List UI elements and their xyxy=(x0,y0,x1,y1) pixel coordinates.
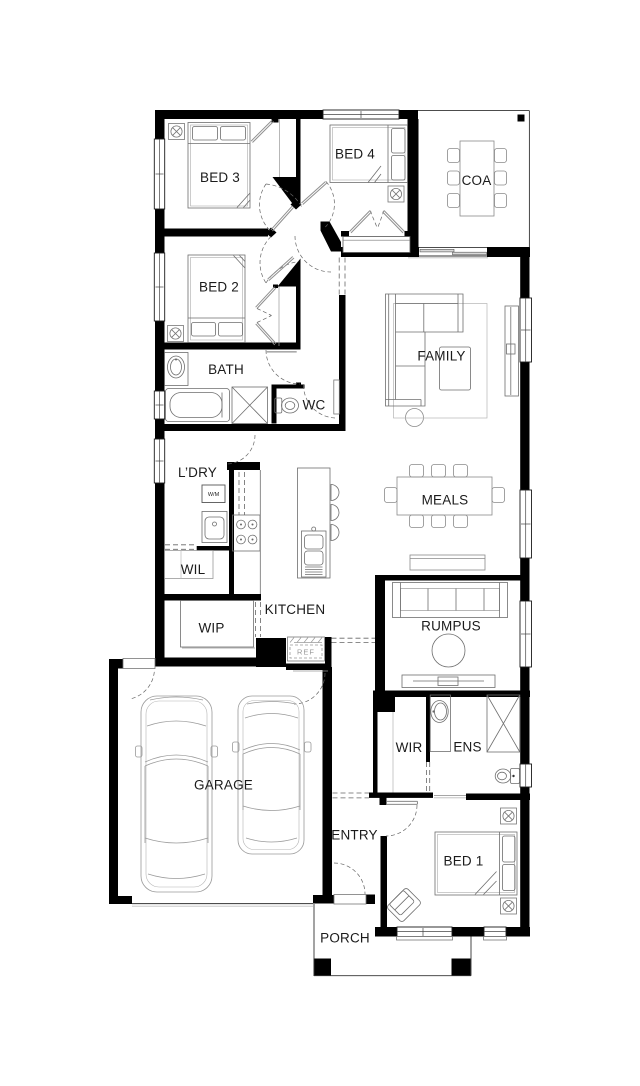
svg-text:PORCH: PORCH xyxy=(320,931,370,946)
svg-text:WIP: WIP xyxy=(198,621,224,636)
svg-text:FAMILY: FAMILY xyxy=(417,349,465,364)
svg-text:BED 4: BED 4 xyxy=(335,147,375,162)
svg-text:ENTRY: ENTRY xyxy=(331,828,378,843)
svg-text:L’DRY: L’DRY xyxy=(178,465,217,480)
svg-text:WIR: WIR xyxy=(396,740,423,755)
svg-text:BATH: BATH xyxy=(208,362,244,377)
svg-text:GARAGE: GARAGE xyxy=(194,778,253,793)
svg-text:BED 2: BED 2 xyxy=(199,280,239,295)
svg-text:RUMPUS: RUMPUS xyxy=(421,619,481,634)
svg-text:W/M: W/M xyxy=(208,492,220,498)
svg-text:MEALS: MEALS xyxy=(422,493,469,508)
svg-text:REF: REF xyxy=(297,648,315,657)
svg-text:WIL: WIL xyxy=(181,562,206,577)
svg-text:KITCHEN: KITCHEN xyxy=(265,602,326,617)
svg-text:COA: COA xyxy=(462,173,492,188)
svg-text:ENS: ENS xyxy=(453,740,481,755)
svg-text:WC: WC xyxy=(303,398,326,413)
svg-text:BED 3: BED 3 xyxy=(200,170,240,185)
svg-text:BED 1: BED 1 xyxy=(443,854,483,869)
